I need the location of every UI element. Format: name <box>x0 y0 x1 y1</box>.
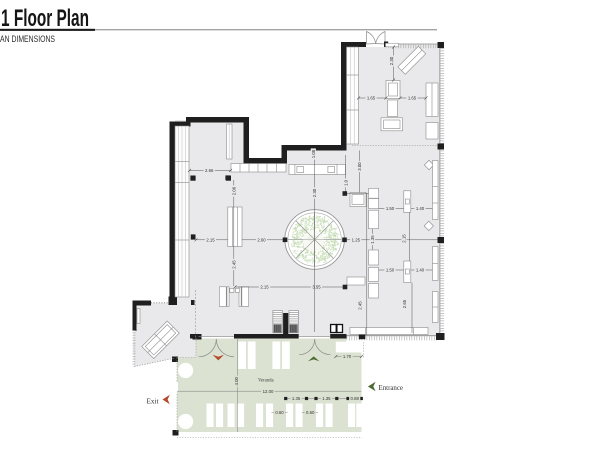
svg-text:1.50: 1.50 <box>386 206 395 211</box>
svg-text:AN DIMENSIONS: AN DIMENSIONS <box>0 34 55 45</box>
svg-text:Entrance: Entrance <box>379 384 404 392</box>
svg-text:2.15: 2.15 <box>206 237 215 242</box>
svg-text:1.65: 1.65 <box>408 96 417 101</box>
svg-text:2.65: 2.65 <box>402 299 407 308</box>
svg-text:1.50: 1.50 <box>386 268 395 273</box>
svg-text:1.70: 1.70 <box>343 354 352 359</box>
svg-text:1.25: 1.25 <box>352 237 361 242</box>
svg-text:2.60: 2.60 <box>257 237 266 242</box>
svg-text:2.30: 2.30 <box>312 188 317 197</box>
svg-text:2.45: 2.45 <box>358 301 363 310</box>
svg-text:1.35: 1.35 <box>370 235 375 244</box>
svg-text:0.88: 0.88 <box>351 396 360 401</box>
svg-text:12.00: 12.00 <box>263 389 274 394</box>
svg-text:1.35: 1.35 <box>292 396 301 401</box>
svg-text:Veranda: Veranda <box>258 377 274 383</box>
svg-text:1.35: 1.35 <box>322 396 331 401</box>
svg-text:0.60: 0.60 <box>306 410 315 415</box>
svg-text:4.00: 4.00 <box>234 377 239 386</box>
svg-text:1.08: 1.08 <box>311 149 316 158</box>
svg-text:1 Floor Plan: 1 Floor Plan <box>1 5 89 32</box>
svg-text:2.15: 2.15 <box>402 234 407 243</box>
svg-text:1.65: 1.65 <box>367 96 376 101</box>
svg-text:3.55: 3.55 <box>312 285 321 290</box>
svg-text:2.15: 2.15 <box>260 285 269 290</box>
svg-text:1.40: 1.40 <box>416 268 425 273</box>
svg-text:2.66: 2.66 <box>205 168 214 173</box>
svg-text:3.00: 3.00 <box>357 162 362 171</box>
svg-text:0.60: 0.60 <box>275 410 284 415</box>
svg-text:2.06: 2.06 <box>231 186 236 195</box>
svg-text:2.30: 2.30 <box>389 56 394 65</box>
svg-text:1.0: 1.0 <box>344 179 349 186</box>
svg-text:1.40: 1.40 <box>416 206 425 211</box>
svg-text:Exit: Exit <box>147 397 159 405</box>
svg-text:2.45: 2.45 <box>231 260 236 269</box>
